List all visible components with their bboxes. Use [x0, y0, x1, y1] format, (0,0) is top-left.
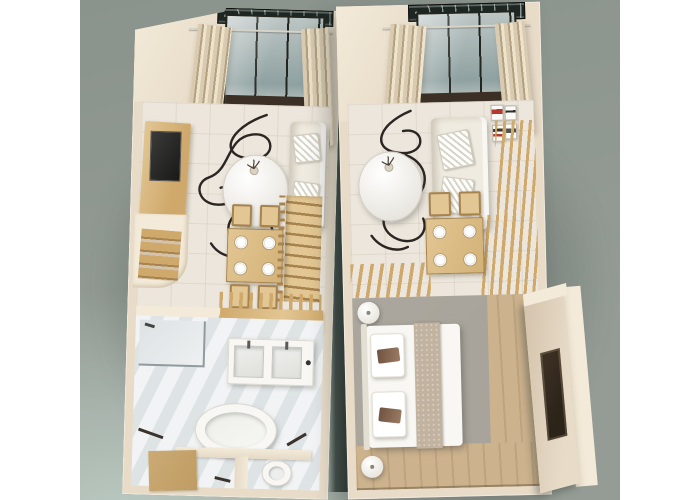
faucet-icon: [285, 342, 288, 350]
bed-pillow: [370, 333, 405, 378]
bed-pillow: [371, 391, 406, 438]
throw-pillow: [436, 129, 474, 171]
place-setting: [433, 226, 445, 238]
tv-screen: [149, 131, 181, 182]
render-stage: [80, 0, 620, 500]
double-sink-vanity: [227, 338, 314, 386]
dining-chair: [260, 205, 281, 228]
dining-chair: [232, 204, 253, 227]
place-setting: [262, 263, 274, 275]
plant-icon: [380, 155, 398, 173]
throw-pillow: [292, 133, 321, 164]
soap-dish-icon: [306, 360, 311, 365]
place-setting: [434, 254, 446, 266]
accent-cushion: [378, 407, 401, 423]
stair-void-slat-screen: [350, 262, 431, 298]
dining-chair: [459, 191, 482, 216]
bathtub-basin: [204, 411, 267, 449]
place-setting: [263, 237, 275, 249]
partition-wall-stub: [234, 456, 248, 488]
sink: [271, 346, 302, 379]
gallery-wall-art: [490, 105, 503, 121]
floor-plan-lower-level: [122, 5, 342, 500]
place-setting: [235, 236, 247, 248]
wood-floor-strip: [356, 442, 543, 491]
sink: [233, 345, 264, 378]
gallery-wall-art: [504, 105, 516, 120]
place-setting: [234, 262, 246, 274]
dining-chair: [429, 192, 452, 217]
right-page-margin: [620, 0, 700, 500]
wall-shelves: [138, 229, 182, 282]
bed-runner: [414, 322, 443, 449]
page-background: { "scene": { "type": "3d-floor-plan-rend…: [0, 0, 700, 500]
faucet-icon: [247, 341, 250, 349]
double-bed: [366, 324, 463, 448]
lamp-icon: [370, 465, 374, 469]
accent-cushion: [377, 347, 401, 364]
left-page-margin: [0, 0, 80, 500]
floor-plan-upper-level: [336, 2, 552, 500]
tv-cabinet: [139, 121, 191, 220]
wood-stairs: [283, 196, 322, 303]
plant-icon: [245, 158, 263, 176]
dining-table: [226, 228, 283, 284]
toilet-seat: [268, 466, 284, 480]
place-setting: [464, 253, 476, 265]
place-setting: [463, 225, 475, 237]
lamp-icon: [366, 311, 370, 315]
bath-mat: [148, 450, 197, 491]
dining-table: [425, 217, 484, 274]
